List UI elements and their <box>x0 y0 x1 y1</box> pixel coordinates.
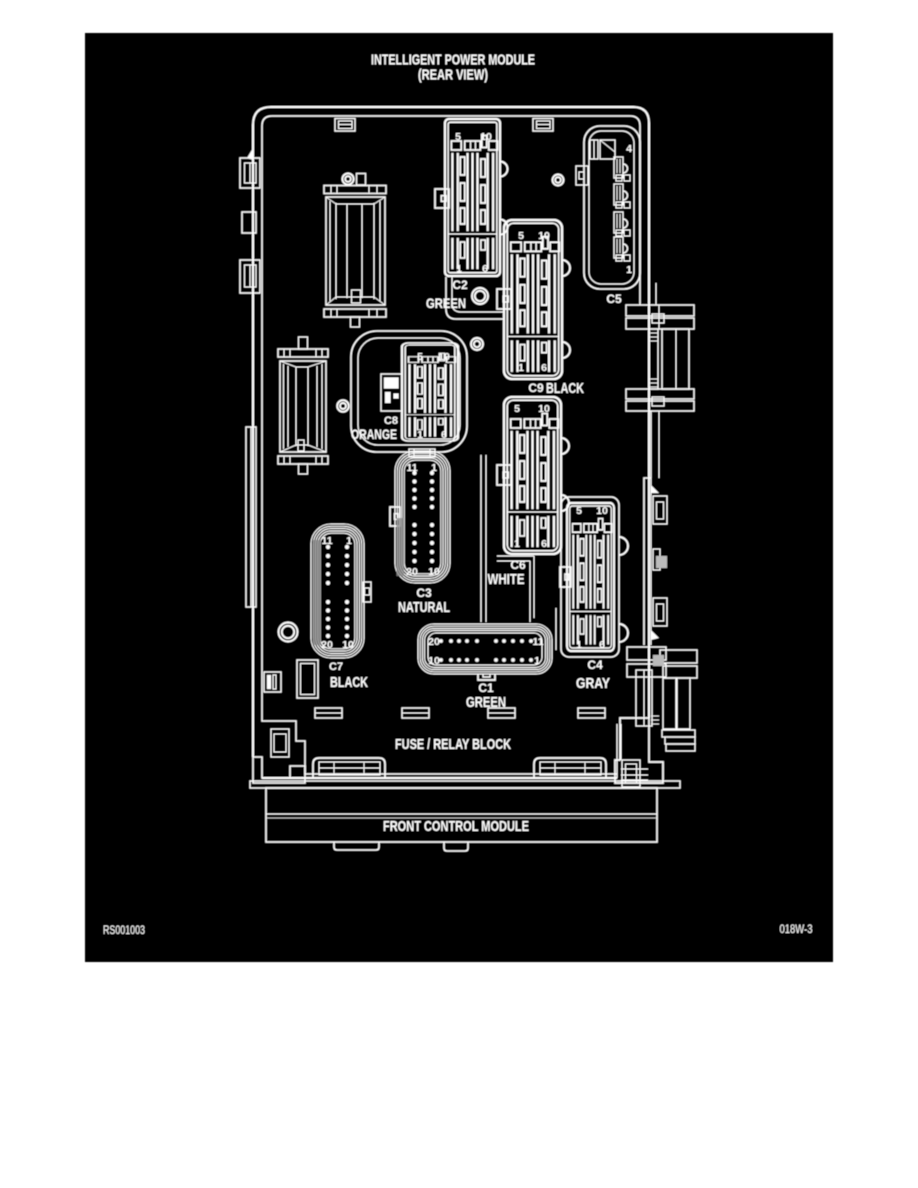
svg-text:1: 1 <box>626 264 632 276</box>
svg-text:NATURAL: NATURAL <box>398 600 450 616</box>
svg-text:5: 5 <box>417 351 423 363</box>
svg-text:1: 1 <box>417 429 423 441</box>
svg-text:(REAR VIEW): (REAR VIEW) <box>418 68 488 84</box>
svg-text:10: 10 <box>428 566 440 578</box>
svg-text:ORANGE: ORANGE <box>351 426 397 442</box>
svg-text:5: 5 <box>518 230 524 242</box>
svg-text:1: 1 <box>576 639 582 651</box>
svg-text:INTELLIGENT POWER MODULE: INTELLIGENT POWER MODULE <box>371 53 535 69</box>
svg-text:5: 5 <box>576 505 582 517</box>
svg-text:C7: C7 <box>329 661 343 673</box>
svg-text:11: 11 <box>321 535 332 547</box>
svg-text:10: 10 <box>480 131 492 143</box>
svg-text:C5: C5 <box>606 292 622 306</box>
svg-text:C1: C1 <box>478 681 494 695</box>
svg-text:1: 1 <box>518 362 524 374</box>
svg-text:BLACK: BLACK <box>546 381 584 397</box>
svg-text:10: 10 <box>342 639 354 651</box>
svg-text:10: 10 <box>538 403 550 415</box>
svg-text:20: 20 <box>428 636 440 648</box>
svg-text:WHITE: WHITE <box>488 572 525 588</box>
svg-text:BLACK: BLACK <box>330 675 368 691</box>
svg-text:10: 10 <box>438 351 450 363</box>
svg-text:10: 10 <box>596 505 608 517</box>
svg-text:6: 6 <box>441 429 447 441</box>
svg-text:C2: C2 <box>452 278 468 292</box>
svg-text:11: 11 <box>532 636 543 648</box>
svg-text:6: 6 <box>599 639 605 651</box>
svg-text:10: 10 <box>538 230 550 242</box>
svg-text:1: 1 <box>534 655 540 667</box>
svg-text:C4: C4 <box>587 658 603 672</box>
svg-text:GRAY: GRAY <box>576 676 610 692</box>
svg-text:5: 5 <box>455 131 461 143</box>
svg-text:C6: C6 <box>510 558 526 572</box>
svg-text:20: 20 <box>406 566 418 578</box>
svg-text:6: 6 <box>541 538 547 550</box>
svg-text:6: 6 <box>482 263 488 275</box>
svg-text:20: 20 <box>321 639 333 651</box>
svg-text:5: 5 <box>514 403 520 415</box>
svg-text:1: 1 <box>431 462 437 474</box>
svg-text:1: 1 <box>514 538 520 550</box>
svg-text:FUSE / RELAY BLOCK: FUSE / RELAY BLOCK <box>395 736 511 753</box>
svg-text:RS001003: RS001003 <box>103 923 145 937</box>
svg-text:C9: C9 <box>528 381 544 395</box>
svg-text:1: 1 <box>456 263 462 275</box>
svg-text:018W-3: 018W-3 <box>780 922 813 936</box>
svg-text:C3: C3 <box>416 586 432 600</box>
svg-text:4: 4 <box>626 143 632 155</box>
svg-text:11: 11 <box>406 462 417 474</box>
svg-text:6: 6 <box>541 362 547 374</box>
svg-text:10: 10 <box>428 655 440 667</box>
svg-text:FRONT CONTROL MODULE: FRONT CONTROL MODULE <box>383 818 529 835</box>
svg-text:1: 1 <box>346 535 352 547</box>
